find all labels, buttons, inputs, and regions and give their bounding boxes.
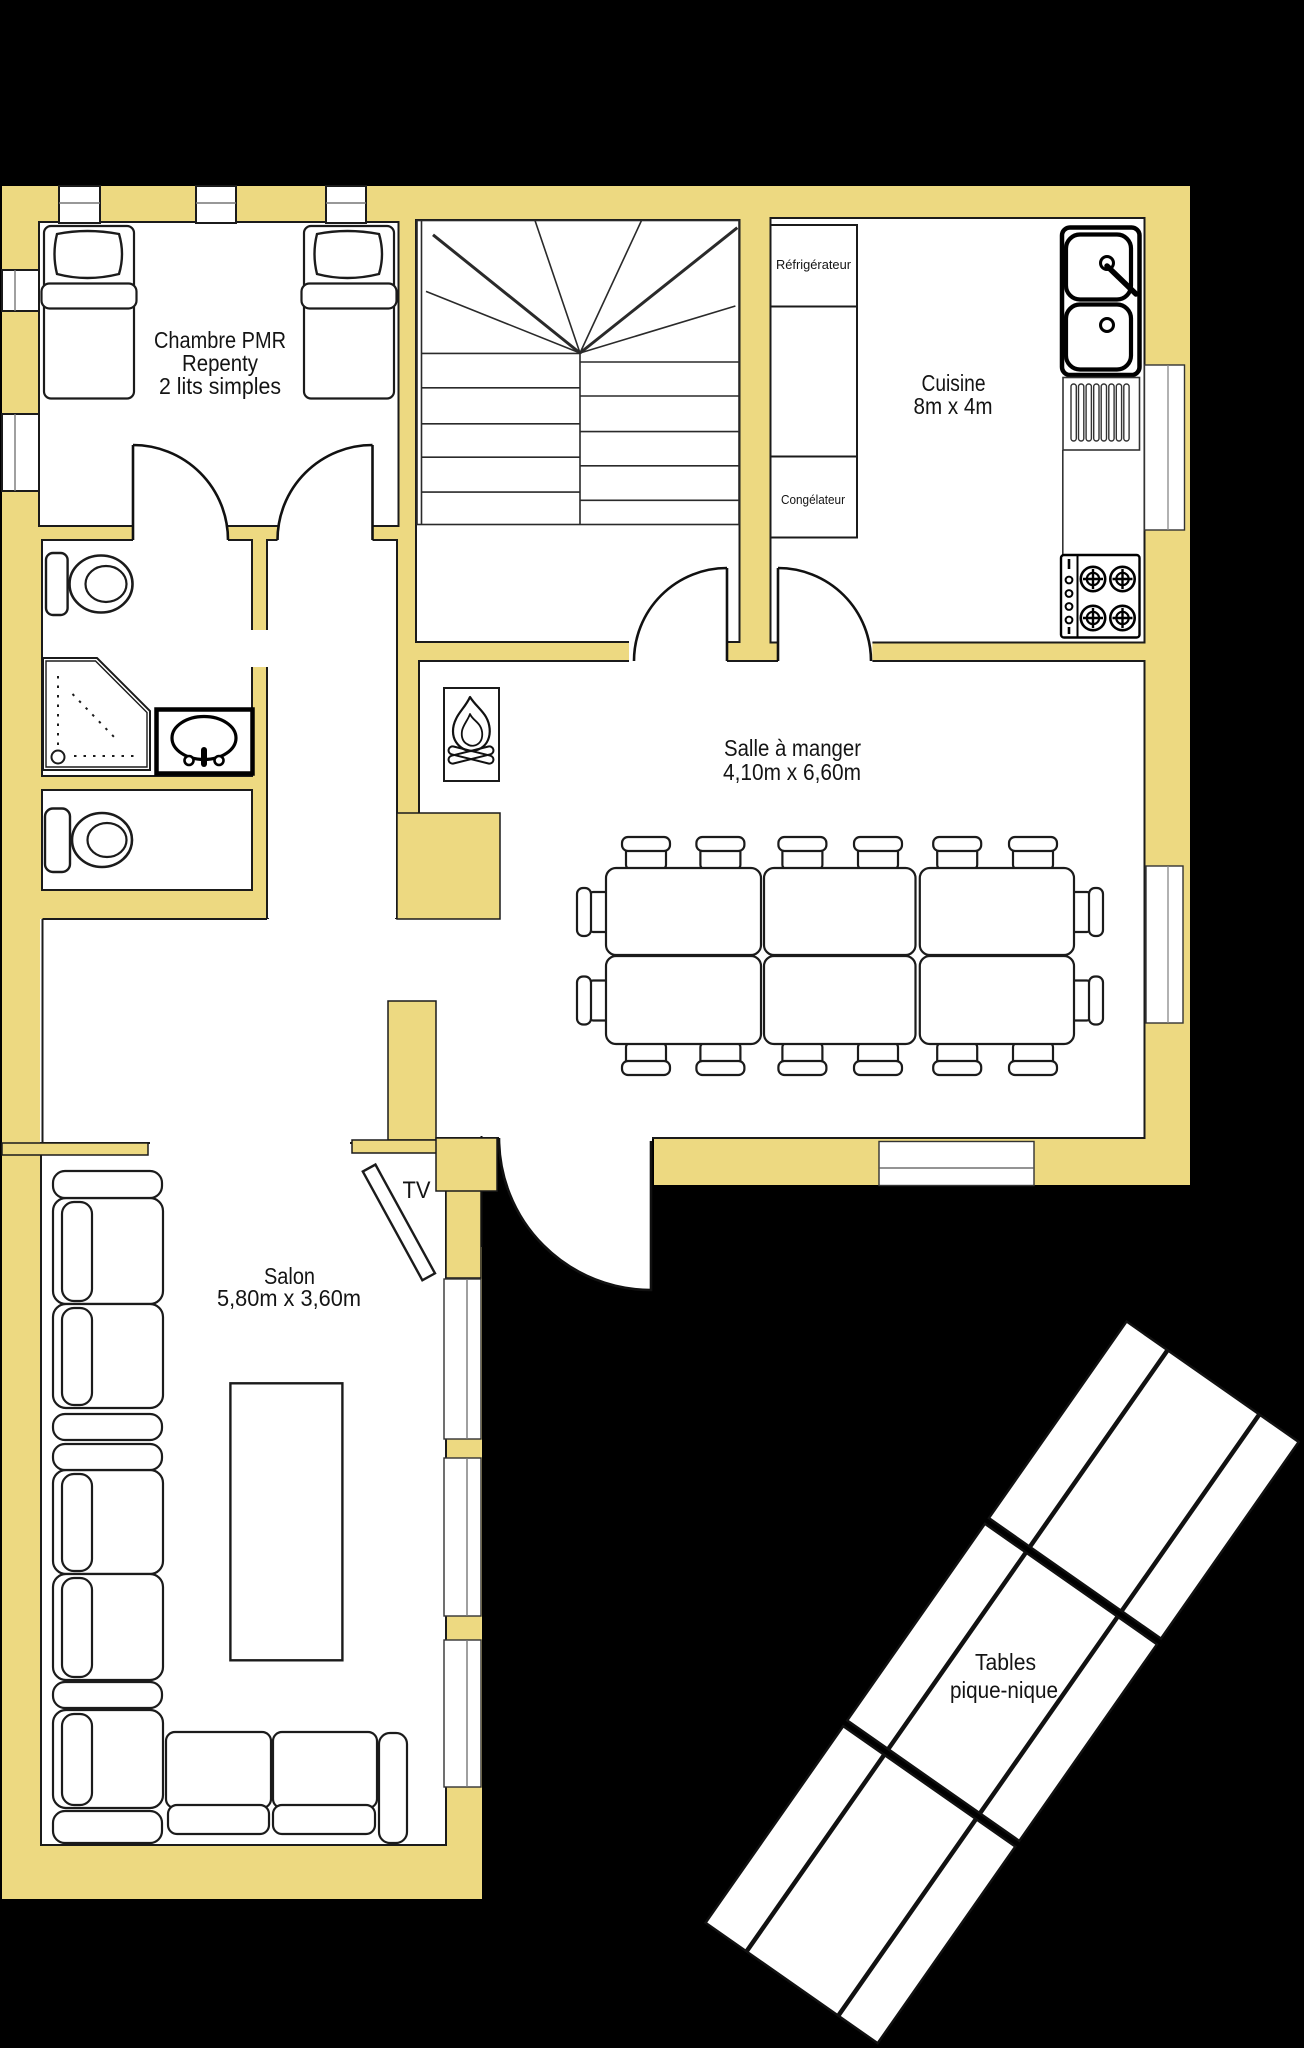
svg-text:4,10m x 6,60m: 4,10m x 6,60m: [723, 759, 861, 785]
svg-text:2 lits simples: 2 lits simples: [159, 373, 281, 399]
svg-text:Tables: Tables: [975, 1649, 1036, 1675]
svg-text:TV: TV: [403, 1177, 431, 1204]
svg-text:Salle à manger: Salle à manger: [724, 735, 861, 761]
svg-text:Réfrigérateur: Réfrigérateur: [776, 257, 852, 272]
svg-text:Congélateur: Congélateur: [781, 492, 846, 507]
svg-text:5,80m x 3,60m: 5,80m x 3,60m: [217, 1285, 361, 1311]
svg-text:8m x 4m: 8m x 4m: [914, 393, 993, 419]
svg-text:pique-nique: pique-nique: [950, 1677, 1058, 1703]
